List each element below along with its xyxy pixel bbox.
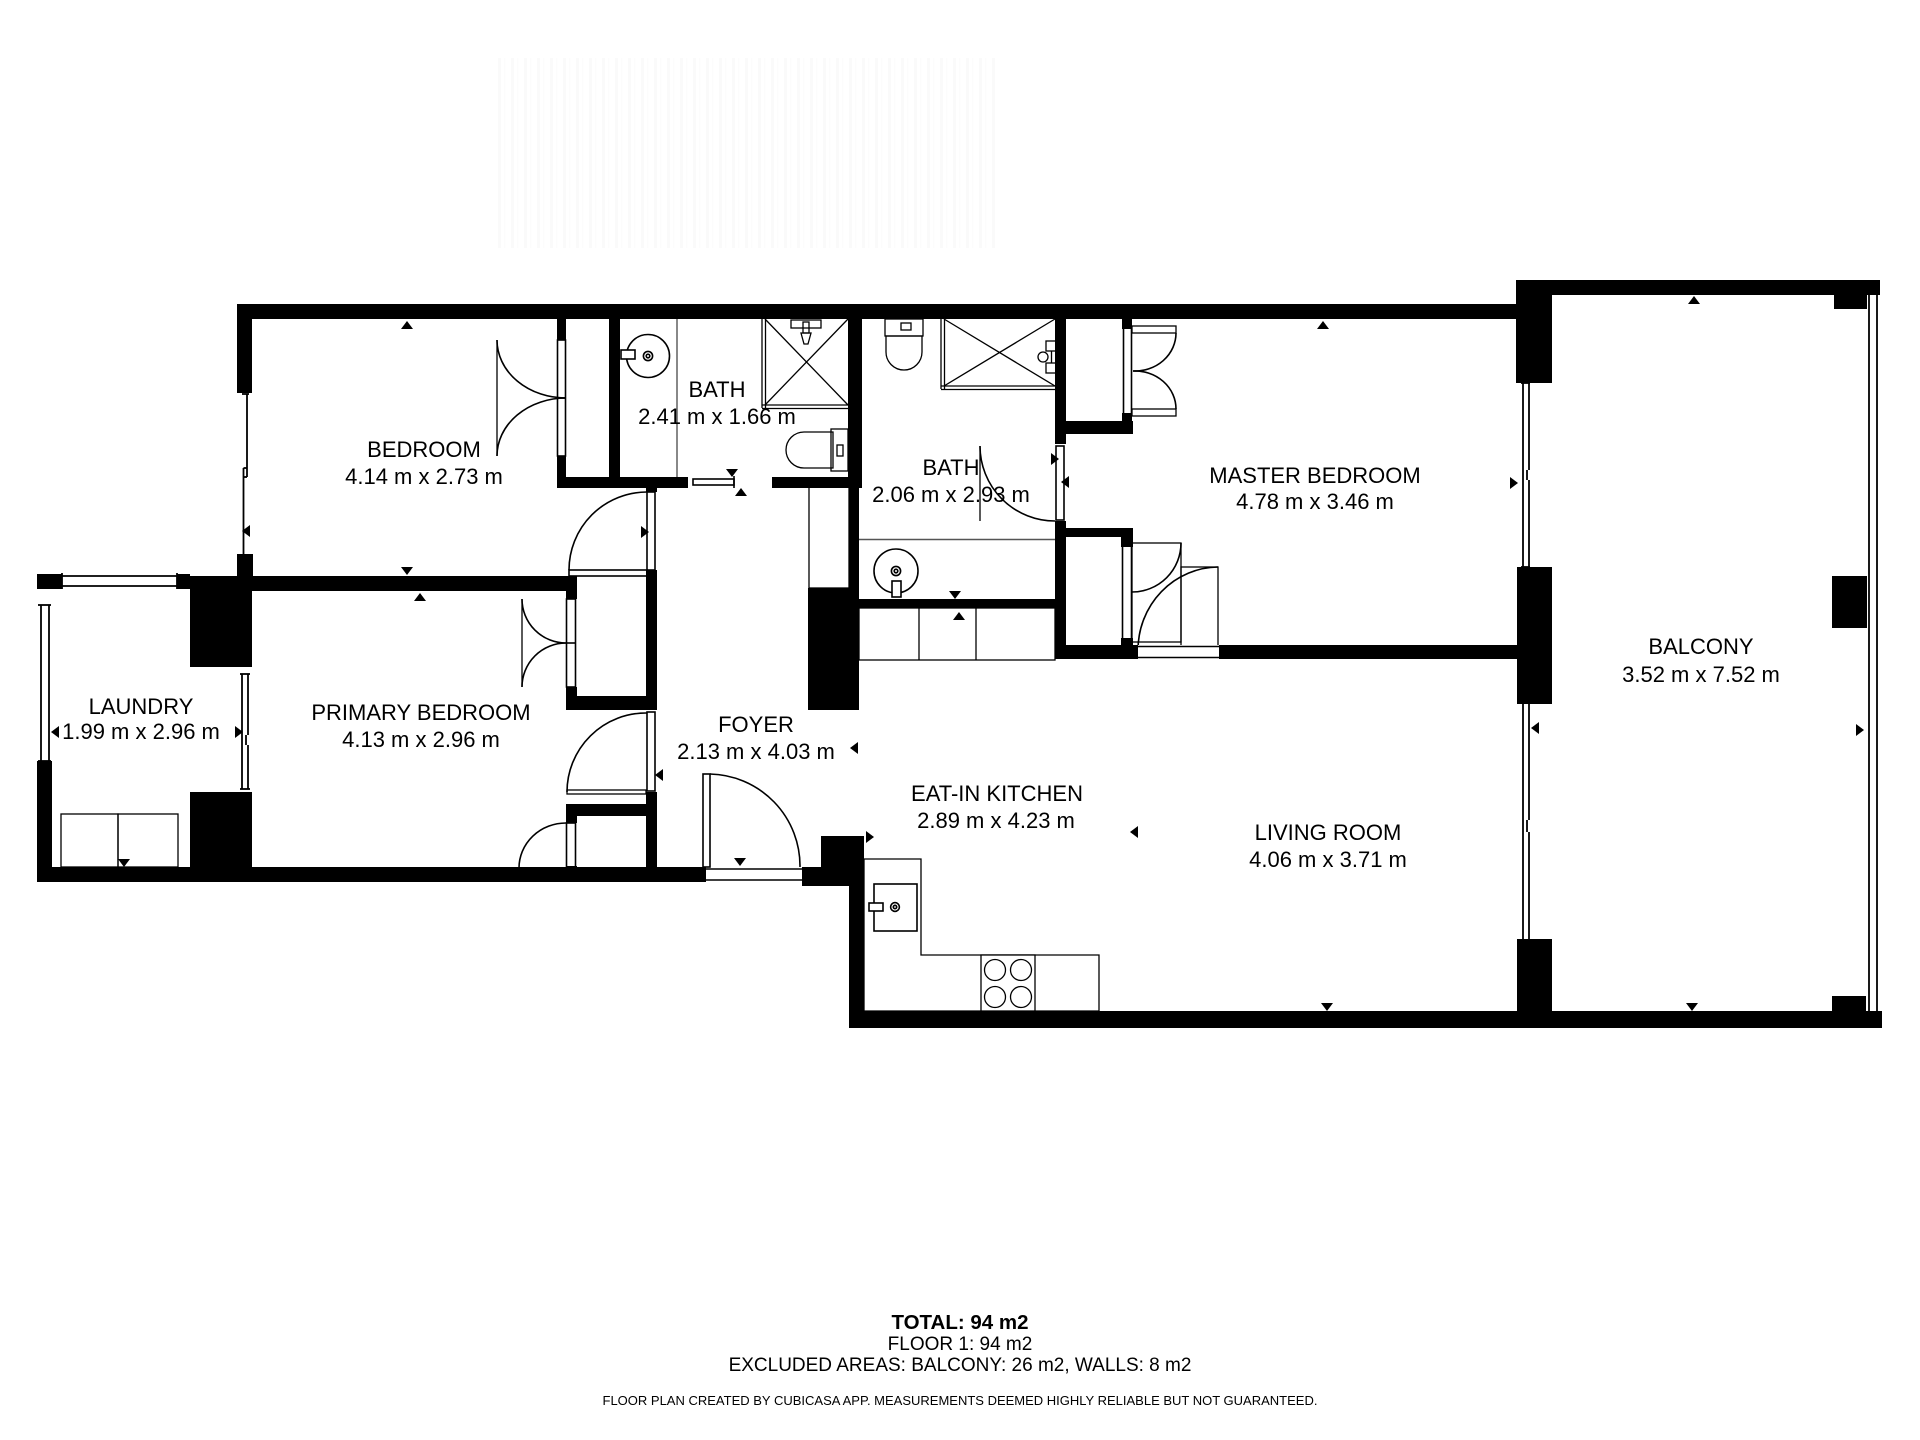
svg-text:EAT-IN KITCHEN: EAT-IN KITCHEN — [911, 781, 1083, 806]
svg-text:3.52 m x 7.52 m: 3.52 m x 7.52 m — [1622, 662, 1780, 687]
svg-text:4.13 m x 2.96 m: 4.13 m x 2.96 m — [342, 727, 500, 752]
svg-text:TOTAL: 94 m2: TOTAL: 94 m2 — [891, 1311, 1028, 1334]
svg-text:FLOOR 1: 94 m2: FLOOR 1: 94 m2 — [888, 1334, 1033, 1355]
svg-text:BATH: BATH — [688, 377, 745, 402]
svg-text:BALCONY: BALCONY — [1648, 634, 1753, 659]
svg-text:MASTER BEDROOM: MASTER BEDROOM — [1209, 463, 1420, 488]
svg-text:2.06 m x 2.93 m: 2.06 m x 2.93 m — [872, 482, 1030, 507]
svg-text:LIVING ROOM: LIVING ROOM — [1255, 820, 1402, 845]
svg-text:FLOOR PLAN CREATED BY CUBICASA: FLOOR PLAN CREATED BY CUBICASA APP. MEAS… — [603, 1393, 1318, 1408]
svg-text:LAUNDRY: LAUNDRY — [89, 694, 194, 719]
svg-text:PRIMARY BEDROOM: PRIMARY BEDROOM — [311, 700, 530, 725]
svg-text:4.14 m x 2.73 m: 4.14 m x 2.73 m — [345, 464, 503, 489]
svg-text:BEDROOM: BEDROOM — [367, 437, 481, 462]
svg-text:4.78 m x 3.46 m: 4.78 m x 3.46 m — [1236, 489, 1394, 514]
svg-text:EXCLUDED AREAS: BALCONY: 26 m2: EXCLUDED AREAS: BALCONY: 26 m2, WALLS: 8… — [729, 1355, 1192, 1376]
svg-text:BATH: BATH — [922, 455, 979, 480]
svg-text:2.13 m x 4.03 m: 2.13 m x 4.03 m — [677, 739, 835, 764]
svg-text:1.99 m x 2.96 m: 1.99 m x 2.96 m — [62, 719, 220, 744]
svg-text:2.41 m x 1.66 m: 2.41 m x 1.66 m — [638, 404, 796, 429]
svg-text:4.06 m x 3.71 m: 4.06 m x 3.71 m — [1249, 847, 1407, 872]
svg-text:FOYER: FOYER — [718, 712, 794, 737]
svg-text:2.89 m x 4.23 m: 2.89 m x 4.23 m — [917, 808, 1075, 833]
